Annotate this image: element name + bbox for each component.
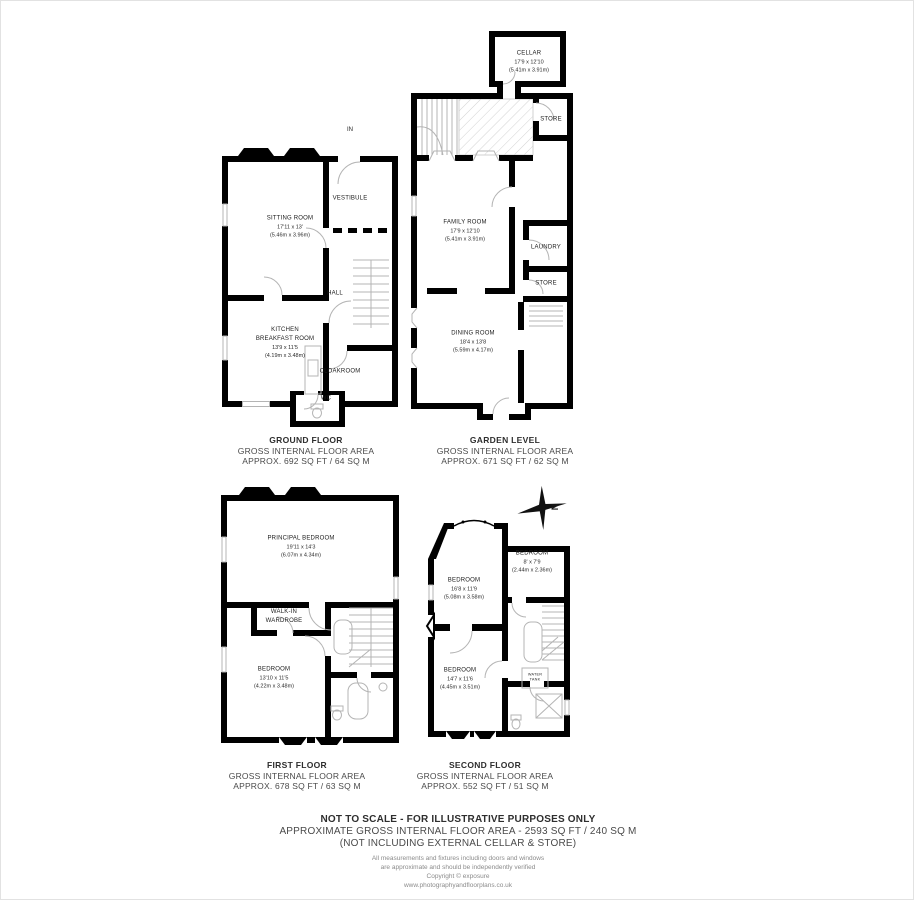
room-name: BEDROOM (444, 576, 484, 585)
room-dim-imperial: 17'9 x 12'10 (509, 58, 549, 66)
floor-area-value: APPROX. 671 SQ FT / 62 SQ M (415, 456, 595, 466)
external-hatched-area (459, 99, 533, 155)
room-dim-imperial: 16'8 x 11'9 (444, 585, 484, 593)
room-name: HALL (327, 290, 343, 299)
garden-level-walls (411, 31, 573, 420)
room-name: LAUNDRY (531, 244, 561, 253)
ground-floor-plan: IN SITTING ROOM 17'11 x 13' (5.46m x 3.9… (222, 148, 398, 427)
second-floor-details (429, 585, 569, 729)
second-floor-drawing (426, 510, 573, 749)
room-name: FAMILY ROOM (443, 218, 486, 227)
not-to-scale-note: NOT TO SCALE - FOR ILLUSTRATIVE PURPOSES… (1, 813, 914, 826)
room-dim-imperial: 13'9 x 11'5 (256, 344, 314, 352)
room-label-store: STORE (535, 280, 557, 289)
room-label-family-room: FAMILY ROOM 17'9 x 12'10 (5.41m x 3.91m) (443, 218, 486, 244)
room-label-kitchen: KITCHEN BREAKFAST ROOM 13'9 x 11'5 (4.19… (256, 326, 314, 361)
room-name: VESTIBULE (333, 195, 368, 204)
compass-north-label: N (549, 504, 559, 511)
room-dim-imperial: 18'4 x 13'8 (451, 338, 495, 346)
bow-window-post (484, 521, 487, 524)
room-dim-metric: (4.19m x 3.48m) (256, 352, 314, 360)
copyright-note: Copyright © exposure (1, 872, 914, 881)
floor-area-value: APPROX. 552 SQ FT / 51 SQ M (395, 781, 575, 791)
room-label-water-tank: WATER TANK (528, 673, 542, 684)
floor-title: GROUND FLOOR (216, 435, 396, 446)
garden-level-title-block: GARDEN LEVEL GROSS INTERNAL FLOOR AREA A… (415, 435, 595, 466)
room-dim-imperial: 17'11 x 13' (267, 223, 313, 231)
room-label-vestibule: VESTIBULE (333, 195, 368, 204)
room-name: BEDROOM (254, 665, 294, 674)
floor-title: SECOND FLOOR (395, 760, 575, 771)
room-name: STORE (540, 116, 562, 125)
room-label-cellar: CELLAR 17'9 x 12'10 (5.41m x 3.91m) (509, 49, 549, 75)
room-label-wc: WC (321, 395, 331, 404)
room-dim-metric: (2.44m x 2.36m) (512, 567, 552, 575)
bow-window-arc (454, 521, 494, 527)
room-name: SITTING ROOM (267, 214, 313, 223)
measurements-disclaimer-line2: are approximate and should be independen… (1, 863, 914, 872)
footer-disclaimer: NOT TO SCALE - FOR ILLUSTRATIVE PURPOSES… (1, 813, 914, 890)
exclusions-note: (NOT INCLUDING EXTERNAL CELLAR & STORE) (1, 838, 914, 850)
room-label-bedroom: BEDROOM 13'10 x 11'5 (4.22m x 3.48m) (254, 665, 294, 691)
garden-level-plan: CELLAR 17'9 x 12'10 (5.41m x 3.91m) STOR… (411, 30, 573, 422)
room-label-bedroom-2: BEDROOM 8' x 7'9 (2.44m x 2.36m) (512, 549, 552, 575)
bow-window-post (462, 521, 465, 524)
floor-title: GARDEN LEVEL (415, 435, 595, 446)
room-name: BEDROOM (512, 549, 552, 558)
room-dim-metric: (4.22m x 3.48m) (254, 683, 294, 691)
room-dim-metric: (4.45m x 3.51m) (440, 684, 480, 692)
room-name: CELLAR (509, 49, 549, 58)
room-name: KITCHEN (256, 326, 314, 335)
room-name-line2: WARDROBE (266, 617, 303, 626)
first-floor-details (222, 537, 398, 720)
room-name: CLOAKROOM (320, 368, 361, 377)
floor-area-value: APPROX. 692 SQ FT / 64 SQ M (216, 456, 396, 466)
first-floor-plan: PRINCIPAL BEDROOM 19'11 x 14'3 (6.07m x … (221, 487, 399, 749)
room-name: STORE (535, 280, 557, 289)
floor-area-label: GROSS INTERNAL FLOOR AREA (395, 771, 575, 781)
room-dim-imperial: 17'9 x 12'10 (443, 227, 486, 235)
room-label-store-upper: STORE (540, 116, 562, 125)
second-floor-plan: BEDROOM 16'8 x 11'9 (5.08m x 3.58m) BEDR… (426, 510, 573, 749)
room-dim-metric: (5.41m x 3.91m) (509, 67, 549, 75)
garden-level-drawing (411, 30, 573, 422)
second-floor-title-block: SECOND FLOOR GROSS INTERNAL FLOOR AREA A… (395, 760, 575, 791)
entrance-in-label: IN (347, 127, 353, 133)
room-dim-metric: (5.46m x 3.96m) (267, 232, 313, 240)
measurements-disclaimer-line1: All measurements and fixtures including … (1, 854, 914, 863)
room-dim-metric: (5.41m x 3.91m) (443, 236, 486, 244)
room-name: BEDROOM (440, 666, 480, 675)
ground-floor-walls (222, 148, 398, 427)
room-label-cloakroom: CLOAKROOM (320, 368, 361, 377)
first-floor-title-block: FIRST FLOOR GROSS INTERNAL FLOOR AREA AP… (207, 760, 387, 791)
room-name: DINING ROOM (451, 329, 495, 338)
floor-area-label: GROSS INTERNAL FLOOR AREA (207, 771, 387, 781)
room-dim-metric: (6.07m x 4.34m) (267, 552, 334, 560)
room-label-sitting-room: SITTING ROOM 17'11 x 13' (5.46m x 3.96m) (267, 214, 313, 240)
floor-area-label: GROSS INTERNAL FLOOR AREA (415, 446, 595, 456)
room-label-walkin-wardrobe: WALK-IN WARDROBE (266, 608, 303, 626)
room-dim-imperial: 13'10 x 11'5 (254, 674, 294, 682)
room-label-laundry: LAUNDRY (531, 244, 561, 253)
room-name: PRINCIPAL BEDROOM (267, 534, 334, 543)
compass-icon (515, 484, 575, 534)
room-label-bedroom-1: BEDROOM 16'8 x 11'9 (5.08m x 3.58m) (444, 576, 484, 602)
ground-floor-drawing (222, 148, 398, 427)
ground-floor-title-block: GROUND FLOOR GROSS INTERNAL FLOOR AREA A… (216, 435, 396, 466)
compass-rose (515, 484, 575, 534)
corner-bay-window (427, 615, 434, 637)
room-label-principal-bedroom: PRINCIPAL BEDROOM 19'11 x 14'3 (6.07m x … (267, 534, 334, 560)
room-dim-metric: (5.59m x 4.17m) (451, 347, 495, 355)
room-dim-imperial: 14'7 x 11'6 (440, 675, 480, 683)
total-area-note: APPROXIMATE GROSS INTERNAL FLOOR AREA - … (1, 826, 914, 838)
floor-title: FIRST FLOOR (207, 760, 387, 771)
room-label-hall: HALL (327, 290, 343, 299)
room-name-line2: TANK (528, 678, 542, 683)
room-label-bedroom-3: BEDROOM 14'7 x 11'6 (4.45m x 3.51m) (440, 666, 480, 692)
floorplan-page: IN SITTING ROOM 17'11 x 13' (5.46m x 3.9… (0, 0, 914, 900)
room-label-dining-room: DINING ROOM 18'4 x 13'8 (5.59m x 4.17m) (451, 329, 495, 355)
website-url: www.photographyandfloorplans.co.uk (1, 881, 914, 890)
floor-area-label: GROSS INTERNAL FLOOR AREA (216, 446, 396, 456)
room-dim-metric: (5.08m x 3.58m) (444, 594, 484, 602)
room-name: WALK-IN (266, 608, 303, 617)
floor-area-value: APPROX. 678 SQ FT / 63 SQ M (207, 781, 387, 791)
room-dim-imperial: 19'11 x 14'3 (267, 543, 334, 551)
room-name: WC (321, 395, 331, 404)
room-dim-imperial: 8' x 7'9 (512, 558, 552, 566)
room-name-line2: BREAKFAST ROOM (256, 335, 314, 344)
first-floor-drawing (221, 487, 399, 749)
